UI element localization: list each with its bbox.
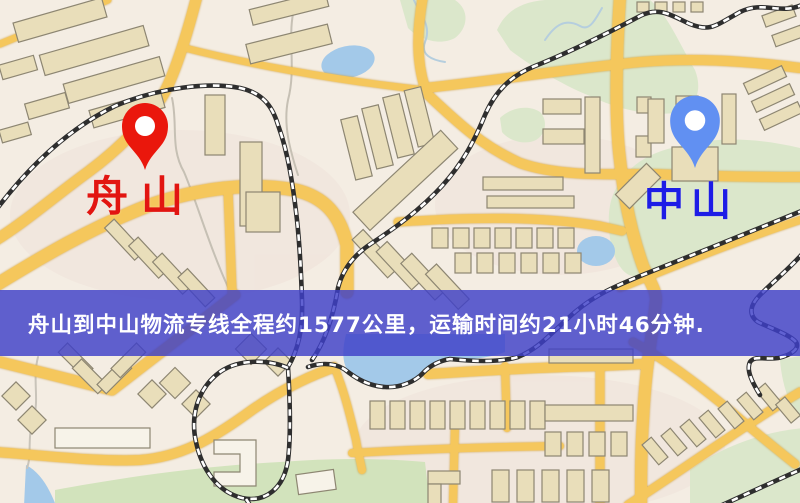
map-artwork — [0, 0, 800, 503]
route-info-text: 舟山到中山物流专线全程约1577公里，运输时间约21小时46分钟. — [28, 308, 705, 339]
map-canvas: 舟山 中山 舟山到中山物流专线全程约1577公里，运输时间约21小时46分钟. — [0, 0, 800, 503]
destination-place-label: 中山 — [644, 182, 738, 222]
origin-place-label: 舟山 — [86, 176, 196, 218]
route-info-banner: 舟山到中山物流专线全程约1577公里，运输时间约21小时46分钟. — [0, 290, 800, 356]
